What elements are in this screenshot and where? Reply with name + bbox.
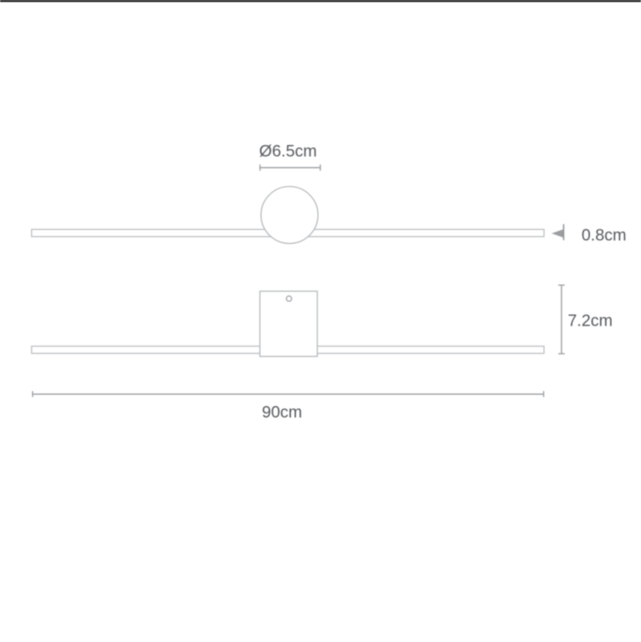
svg-text:Ø6.5cm: Ø6.5cm bbox=[259, 143, 317, 161]
svg-text:7.2cm: 7.2cm bbox=[568, 312, 613, 330]
svg-text:90cm: 90cm bbox=[262, 404, 302, 422]
svg-text:0.8cm: 0.8cm bbox=[582, 227, 627, 245]
